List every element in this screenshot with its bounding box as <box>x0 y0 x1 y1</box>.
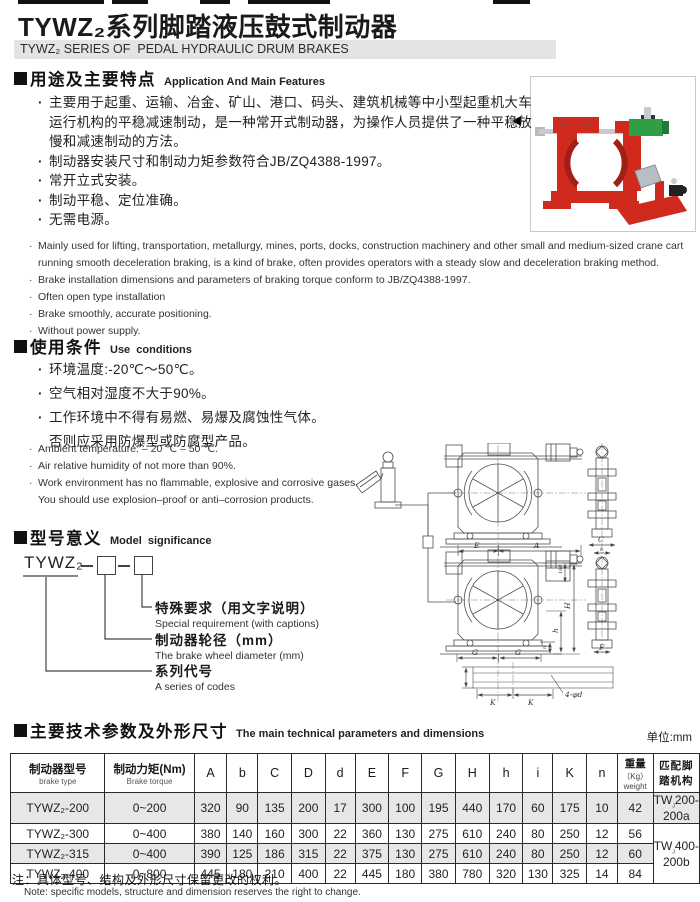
table-cell: 84 <box>617 864 653 884</box>
section-parameters-heading: 主要技术参数及外形尺寸 The main technical parameter… <box>14 718 484 742</box>
bullet-item: 空气相对湿度不大于90%。 <box>36 382 506 406</box>
column-header: G <box>422 754 456 793</box>
table-row: TYWZ₂-3000~40038014016030022360130275610… <box>11 824 700 844</box>
table-cell: 10 <box>587 793 618 824</box>
parameters-table: 制动器型号brake type制动力矩(Nm)Brake torqueAbCDd… <box>10 753 700 884</box>
column-header: H <box>455 754 489 793</box>
table-cell: 180 <box>389 864 422 884</box>
bullet-item: Brake smoothly, accurate positioning. <box>28 306 696 323</box>
table-cell: 12 <box>587 844 618 864</box>
table-cell: 445 <box>355 864 389 884</box>
table-cell: 140 <box>227 824 258 844</box>
section-parameters-heading-cn: 主要技术参数及外形尺寸 <box>30 718 228 742</box>
table-cell: 135 <box>258 793 292 824</box>
features-bullets-cn: 主要用于起重、运输、冶金、矿山、港口、码头、建筑机械等中小型起重机大车运行机构的… <box>36 93 536 230</box>
section-conditions-heading-cn: 使用条件 <box>30 334 102 358</box>
table-cell: 12 <box>587 824 618 844</box>
column-header: 制动器型号brake type <box>11 754 105 793</box>
bullet-item: 主要用于起重、运输、冶金、矿山、港口、码头、建筑机械等中小型起重机大车运行机构的… <box>36 93 536 152</box>
table-cell: 400 <box>292 864 326 884</box>
dim-label-n: n <box>542 646 548 649</box>
model-label-en: A series of codes <box>155 681 235 693</box>
bullet-item: 制动平稳、定位准确。 <box>36 191 536 211</box>
section-parameters-heading-en: The main technical parameters and dimens… <box>236 728 484 740</box>
bullet-item: 环境温度:-20℃～50℃。 <box>36 358 506 382</box>
table-cell: 250 <box>553 824 587 844</box>
table-cell: 0~400 <box>105 824 194 844</box>
table-cell: 320 <box>194 793 227 824</box>
table-cell: 60 <box>523 793 553 824</box>
dim-label-G2: G <box>515 648 521 657</box>
column-header: i <box>523 754 553 793</box>
dim-label-K2: K <box>527 698 534 707</box>
table-cell: 610 <box>455 824 489 844</box>
column-header: K <box>553 754 587 793</box>
bullet-item: 制动器安装尺寸和制动力矩参数符合JB/ZQ4388-1997。 <box>36 152 536 172</box>
table-cell: 130 <box>389 844 422 864</box>
conditions-bullets-cn: 环境温度:-20℃～50℃。空气相对湿度不大于90%。工作环境中不得有易燃、易爆… <box>36 358 506 454</box>
table-cell: 125 <box>227 844 258 864</box>
model-label-cn: 系列代号 <box>155 660 235 680</box>
dim-label-h: h <box>551 628 560 633</box>
table-cell: 170 <box>489 793 523 824</box>
unit-label: 单位:mm <box>600 729 692 745</box>
section-features-heading: 用途及主要特点 Application And Main Features <box>14 66 325 90</box>
table-cell: 17 <box>325 793 355 824</box>
table-cell: 56 <box>617 824 653 844</box>
table-cell: 780 <box>455 864 489 884</box>
table-cell: 90 <box>227 793 258 824</box>
table-cell: 380 <box>194 824 227 844</box>
table-cell: 42 <box>617 793 653 824</box>
column-header: C <box>258 754 292 793</box>
table-cell: 240 <box>489 844 523 864</box>
table-cell: 195 <box>422 793 456 824</box>
column-header: b <box>227 754 258 793</box>
dim-label-A: A <box>533 541 540 550</box>
column-header: 制动力矩(Nm)Brake torque <box>105 754 194 793</box>
table-cell: 160 <box>258 824 292 844</box>
page-subtitle: TYWZ₂ SERIES OF PEDAL HYDRAULIC DRUM BRA… <box>14 40 556 56</box>
bullet-item: 常开立式安装。 <box>36 171 536 191</box>
page-title: TYWZ₂系列脚踏液压鼓式制动器 <box>18 7 397 44</box>
table-cell: 0~200 <box>105 793 194 824</box>
top-dash <box>18 0 104 4</box>
table-cell: TWJ200-200a <box>653 793 699 824</box>
table-cell: 275 <box>422 824 456 844</box>
table-cell: TWJ400-200b <box>653 824 699 884</box>
table-cell: TYWZ₂-315 <box>11 844 105 864</box>
top-dash <box>112 0 148 4</box>
table-cell: 610 <box>455 844 489 864</box>
section-model-heading-en: Model significance <box>110 535 211 547</box>
model-label-series: 系列代号 A series of codes <box>155 660 235 693</box>
section-conditions-heading: 使用条件 Use conditions <box>14 334 192 358</box>
bullet-item: Often open type installation <box>28 289 696 306</box>
table-cell: 440 <box>455 793 489 824</box>
table-cell: 390 <box>194 844 227 864</box>
table-cell: 22 <box>325 864 355 884</box>
column-header: n <box>587 754 618 793</box>
product-photo-illustration <box>531 77 695 231</box>
table-note-cn: 注：具体型号、结构及外形尺寸保留更改的权利。 <box>12 871 287 888</box>
table-cell: 22 <box>325 844 355 864</box>
table-cell: 22 <box>325 824 355 844</box>
column-header: E <box>355 754 389 793</box>
section-conditions-heading-en: Use conditions <box>110 344 192 356</box>
table-cell: 320 <box>489 864 523 884</box>
dim-label-holes: 4-φd <box>564 690 583 699</box>
model-label-cn: 制动器轮径（mm） <box>155 629 304 649</box>
table-cell: 60 <box>617 844 653 864</box>
table-cell: 186 <box>258 844 292 864</box>
table-cell: 0~400 <box>105 844 194 864</box>
top-dash <box>493 0 530 4</box>
catalog-page: TYWZ₂系列脚踏液压鼓式制动器 TYWZ₂ SERIES OF PEDAL H… <box>0 0 700 902</box>
table-cell: 130 <box>389 824 422 844</box>
table-cell: 250 <box>553 844 587 864</box>
dim-label-G1: G <box>472 648 478 657</box>
table-cell: 275 <box>422 844 456 864</box>
product-photo <box>530 76 696 232</box>
dim-label-F: F <box>598 643 605 652</box>
dim-label-E: E <box>473 541 480 550</box>
features-bullets-en: Mainly used for lifting, transportation,… <box>28 238 696 340</box>
dim-label-K1: K <box>489 698 496 707</box>
table-cell: 14 <box>587 864 618 884</box>
table-row: TYWZ₂-3150~40039012518631522375130275610… <box>11 844 700 864</box>
table-cell: 80 <box>523 824 553 844</box>
column-header: A <box>194 754 227 793</box>
table-cell: TYWZ₂-200 <box>11 793 105 824</box>
column-header: 匹配脚踏机构 <box>653 754 699 793</box>
model-label-special: 特殊要求（用文字说明） Special requirement (with ca… <box>155 597 319 630</box>
column-header: F <box>389 754 422 793</box>
section-features-heading-cn: 用途及主要特点 <box>30 66 156 90</box>
square-bullet-icon <box>14 72 27 85</box>
table-note-en: Note: specific models, structure and dim… <box>24 887 361 898</box>
table-cell: 360 <box>355 824 389 844</box>
technical-drawing: E A H 180 h n G G C b F <box>350 443 700 715</box>
table-cell: 175 <box>553 793 587 824</box>
dim-label-b: b <box>600 547 603 553</box>
model-label-cn: 特殊要求（用文字说明） <box>155 597 319 617</box>
table-cell: 375 <box>355 844 389 864</box>
section-features-heading-en: Application And Main Features <box>164 76 325 88</box>
table-cell: 315 <box>292 844 326 864</box>
section-model-heading-cn: 型号意义 <box>30 525 102 549</box>
page-subtitle-bar: TYWZ₂ SERIES OF PEDAL HYDRAULIC DRUM BRA… <box>14 40 556 59</box>
table-cell: 380 <box>422 864 456 884</box>
square-bullet-icon <box>14 340 27 353</box>
dim-label-C: C <box>598 535 604 544</box>
table-cell: 300 <box>355 793 389 824</box>
column-header: h <box>489 754 523 793</box>
bullet-item: 无需电源。 <box>36 210 536 230</box>
column-header: d <box>325 754 355 793</box>
table-cell: 325 <box>553 864 587 884</box>
table-cell: 240 <box>489 824 523 844</box>
table-cell: TYWZ₂-300 <box>11 824 105 844</box>
table-row: TYWZ₂-2000~20032090135200173001001954401… <box>11 793 700 824</box>
column-header: 重量（Kg）weight <box>617 754 653 793</box>
table-cell: 130 <box>523 864 553 884</box>
bullet-item: Brake installation dimensions and parame… <box>28 272 696 289</box>
top-dash <box>248 0 330 4</box>
section-model-heading: 型号意义 Model significance <box>14 525 211 549</box>
table-cell: 80 <box>523 844 553 864</box>
dim-label-180: 180 <box>558 564 564 574</box>
bullet-item: Mainly used for lifting, transportation,… <box>28 238 696 272</box>
top-dash <box>200 0 230 4</box>
model-label-diameter: 制动器轮径（mm） The brake wheel diameter (mm) <box>155 629 304 662</box>
table-cell: 200 <box>292 793 326 824</box>
square-bullet-icon <box>14 724 27 737</box>
square-bullet-icon <box>14 531 27 544</box>
dim-label-H: H <box>563 602 572 610</box>
table-cell: 300 <box>292 824 326 844</box>
table-cell: 100 <box>389 793 422 824</box>
column-header: D <box>292 754 326 793</box>
